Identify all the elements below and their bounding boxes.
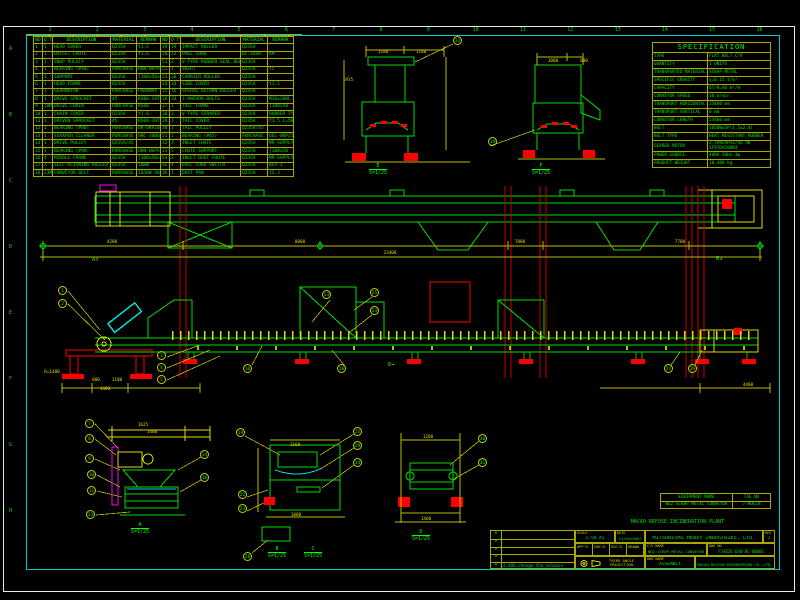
parts-cell: t1.5 (268, 81, 294, 88)
dim-text: 7700 (675, 240, 685, 245)
parts-cell: INLET CHUTE (181, 140, 241, 147)
spec-label: SPECIFIC GRAVITY (653, 77, 708, 85)
parts-cell: DRIVE PULLEY (53, 140, 111, 147)
parts-cell: 45 (111, 96, 137, 103)
parts-cell: t1.5 L=500 (268, 118, 294, 125)
spec-label: TYPE (653, 53, 708, 61)
parts-cell: 2 (43, 162, 53, 169)
parts-cell: Q235A (111, 44, 137, 51)
plant-title: MACAO REFUSE INCINERATION PLANT (595, 519, 760, 525)
parts-cell: UK-UKP208 (137, 125, 161, 132)
balloon-29: 29 (353, 441, 362, 450)
parts-row: 343INLET DUST CHUTEQ235AMR SUPPLY (161, 155, 294, 162)
parts-cell: 7 (34, 88, 43, 95)
item-label: DWG NAME (647, 557, 664, 561)
parts-cell: UEL-UKP213 (268, 133, 294, 140)
equipment-name-box: EQUIPMENT NAME TAG NO NO2 SCRAP METAL CO… (660, 493, 771, 509)
signoff-cell: APP'D (576, 544, 593, 555)
parts-cell: 30 (170, 73, 181, 80)
view-letter: C (304, 546, 322, 553)
dim-text: 1100 (416, 50, 426, 55)
parts-cell: 5 (34, 73, 43, 80)
parts-cell: Q235A (241, 96, 268, 103)
parts-cell: 27 (161, 103, 170, 110)
dim-text: 7800 (515, 240, 525, 245)
parts-header-cell: DESCRIPTION (181, 37, 241, 44)
parts-cell: PULL CORD (181, 51, 241, 58)
parts-cell: RUBBER TYPE (268, 110, 294, 117)
parts-cell: V-TYPE SCRAPER (181, 110, 241, 117)
balloon-7: 7 (85, 419, 94, 428)
drawing-title: NO2 SCRAP METAL CONVEYOR (646, 549, 706, 554)
rev-label: REV (765, 531, 771, 535)
parts-cell: PURCHASE (111, 88, 137, 95)
balloon-14: 14 (200, 450, 209, 459)
drawing-title-label: C/V NAME (647, 544, 664, 548)
parts-cell: 3 (170, 155, 181, 162)
parts-cell: 1 (43, 96, 53, 103)
parts-cell: PULL CORD SWITCH (181, 162, 241, 169)
scale-cell: SCALE 1:50 A1 (575, 530, 615, 543)
parts-cell: 1 (43, 110, 53, 117)
parts-row: 2022PULL CORDDC-18484M (161, 51, 294, 58)
view-letter: B (268, 546, 286, 553)
parts-cell: 1 (43, 125, 53, 132)
parts-cell: DRIVEN SPROCKET (53, 118, 111, 125)
revision-table: ⊗⊗⊗⊗Δ2.AUG change the colours (490, 530, 575, 569)
spec-label: BELT TYPE (653, 133, 708, 141)
spec-value: 1050Wx3P(1.5x2.4) (708, 125, 771, 133)
parts-cell: TAIL PULLEY (181, 125, 241, 132)
dim-text: 1400 (100, 387, 110, 392)
specification-table: SPECIFICATIONTYPEFLAT BELT C/VQUANTITY1 … (652, 42, 771, 168)
parts-cell: t2.3 (268, 170, 294, 177)
parts-cell: 14 (34, 140, 43, 147)
parts-list-header: NOQ'TYDESCRIPTIONMATERIALREMARK (34, 37, 161, 44)
dim-text: 800 (580, 59, 588, 64)
view-label-D: DS=1/25 (412, 529, 430, 542)
parts-cell: OUTLET CHUTE (53, 51, 111, 58)
parts-row: 1823MCONVEYOR BELTPURCHASE1050W 4800L (34, 170, 161, 177)
parts-header-cell: Q'TY (43, 37, 53, 44)
parts-header-cell: REMARK (268, 37, 294, 44)
parts-cell: 18 (34, 170, 43, 177)
parts-row: 101CHAIN COVERQ235At1.6 (34, 110, 161, 117)
parts-cell: SIDE COVER (181, 81, 241, 88)
view-label-A: AS=1/25 (131, 522, 149, 535)
parts-cell: 1 (170, 103, 181, 110)
parts-cell: Q235A (241, 88, 268, 95)
spec-value: γ=0.15 t/m³ (708, 77, 771, 85)
balloon-13: 13 (322, 290, 331, 299)
spec-value: 6T/H=40 m³/H (708, 85, 771, 93)
parts-list-right: NOQ'TYDESCRIPTIONMATERIALREMARK 1919IMPA… (160, 36, 294, 177)
parts-cell: Q235A/45 (111, 140, 137, 147)
parts-cell: DC-1848 (241, 51, 268, 58)
spec-label: QUANTITY (653, 61, 708, 69)
parts-cell: PARAMAX (137, 88, 161, 95)
balloon-23: 23 (370, 306, 379, 315)
tag-no-value: 7-HDE18 (733, 501, 771, 509)
parts-cell: IMPACT ROLLER (181, 44, 241, 51)
parts-cell: 1 (43, 73, 53, 80)
parts-header-cell: NO (161, 37, 170, 44)
parts-cell (268, 88, 294, 95)
parts-cell: Q235A (241, 170, 268, 177)
dim-text: 1160 (290, 443, 300, 448)
projection-cell: THIRD ANGLE PROJECTION (575, 556, 645, 569)
parts-row: 2330CARRIER ROLLERQ235A (161, 73, 294, 80)
parts-cell (268, 125, 294, 132)
parts-list-header: NOQ'TYDESCRIPTIONMATERIALREMARK (161, 37, 294, 44)
parts-cell: 1 (170, 170, 181, 177)
view-scale: S=1/25 (304, 553, 322, 559)
parts-cell: PURCHASE (111, 125, 137, 132)
dim-text: 1625 (138, 423, 148, 428)
parts-header-cell: NO (34, 37, 43, 44)
balloon-13: 13 (86, 510, 95, 519)
parts-cell: 29 (161, 118, 170, 125)
dim-text: 4200 (107, 240, 117, 245)
parts-cell: 100W (137, 162, 161, 169)
spec-row: CAPACITY6T/H=40 m³/H (653, 85, 771, 93)
parts-cell: [100x50 (268, 103, 294, 110)
parts-cell: 8 (34, 96, 43, 103)
view-label-F: FS=1/25 (532, 163, 550, 176)
parts-cell: [100x50 (268, 147, 294, 154)
parts-cell: 6 (34, 81, 43, 88)
parts-cell: SUPPORT (53, 73, 111, 80)
parts-header-cell: Q'TY (170, 37, 181, 44)
parts-row: 151BEARING (#90)PURCHASEUKN-UKP508 (34, 147, 161, 154)
balloon-4: 4 (157, 363, 166, 372)
parts-cell: 1 (43, 81, 53, 88)
spec-label: BELT (653, 125, 708, 133)
parts-row: 61HEAD FRAMEQ235A (34, 81, 161, 88)
revision-symbol: ⊗ (491, 539, 502, 547)
parts-cell: RS80 (137, 103, 161, 110)
section-arrow: ↑ (95, 257, 98, 263)
parts-cell: 1 (43, 51, 53, 58)
dim-text: 23400 (384, 251, 397, 256)
spec-row: BELT TYPEHEAT RESISTANT RUBBER (653, 133, 771, 141)
parts-cell: CHAIN COVER (53, 110, 111, 117)
balloon-32: 32 (453, 36, 462, 45)
drawing-no-cell: DWG NO FJ3626-D40-BC-00001 (707, 543, 775, 556)
parts-cell (268, 59, 294, 66)
spec-row: CONVEYOR SPEED10 m/min (653, 93, 771, 101)
spec-value: 23400 mm (708, 101, 771, 109)
balloon-19: 19 (236, 428, 245, 437)
view-label-C: CS=1/25 (304, 546, 322, 559)
parts-cell: 10M (43, 103, 53, 110)
dim-text: 1000 (548, 59, 558, 64)
spec-row: TRANSPORT VERTICAL0 mm (653, 109, 771, 117)
parts-cell: 1 (43, 133, 53, 140)
revision-symbol: ⊗ (491, 547, 502, 555)
parts-row: 172SELF-ALIGNING ROLLERQ235A100W (34, 162, 161, 169)
parts-cell: 9 (34, 103, 43, 110)
spec-value: FLAT BELT C/V (708, 53, 771, 61)
parts-row: 312BEARING (#65)PURCHASEUEL-UKP213 (161, 133, 294, 140)
parts-cell: PURCHASE (111, 170, 137, 177)
parts-row: 291TAIL COVERQ235At1.5 L=500 (161, 118, 294, 125)
parts-cell: Q235A (241, 44, 268, 51)
parts-cell: Q235A (241, 118, 268, 125)
revision-symbol: ⊗ (491, 531, 502, 539)
signoff-cell: DRAWN (627, 544, 644, 555)
spec-label: TRANSPORT VERTICAL (653, 109, 708, 117)
parts-header-cell: REMARK (137, 37, 161, 44)
parts-cell: Q235A (241, 103, 268, 110)
spec-row: TYPEFLAT BELT C/V (653, 53, 771, 61)
parts-cell: 1 (43, 147, 53, 154)
dim-text: 1100 (378, 50, 388, 55)
parts-cell: MR SUPPLY (268, 140, 294, 147)
parts-cell: 36 (161, 170, 170, 177)
view-letter: F (532, 163, 550, 170)
parts-cell: Q235A (111, 110, 137, 117)
balloon-10: 10 (87, 470, 96, 479)
parts-list-left: NOQ'TYDESCRIPTIONMATERIALREMARK 11HEAD C… (33, 36, 161, 177)
spec-row: QUANTITY1 UNITS (653, 61, 771, 69)
dim-text: 1200 (423, 435, 433, 440)
parts-row: 41BEARING (#40)PURCHASEUKN-UKP408 (34, 66, 161, 73)
parts-row: 354PULL CORD SWITCHQ235ABLP-3 (161, 162, 294, 169)
parts-header-row: NOQ'TYDESCRIPTIONMATERIALREMARK (34, 37, 161, 44)
company-cell: MITSUBISHI HEAVY INDUSTRIES, LTD. (645, 530, 763, 543)
view-scale: S=1/25 (532, 170, 550, 176)
parts-cell: SNAP PULLEY (53, 59, 111, 66)
drawing-title-cell: C/V NAME NO2 SCRAP METAL CONVEYOR (645, 543, 707, 556)
parts-cell: 2 (170, 59, 181, 66)
parts-cell: INLET DUST CHUTE (181, 155, 241, 162)
rev-cell: REV 1 (763, 530, 775, 543)
parts-cell (137, 59, 161, 66)
parts-cell: 24 (161, 81, 170, 88)
parts-cell: UKN-UKP408 (137, 66, 161, 73)
spec-value: SCRAP METAL (708, 69, 771, 77)
spec-row: TRANSPORT HORIZONTAL23400 mm (653, 101, 771, 109)
parts-cell: 1 (170, 66, 181, 73)
parts-row: 2516SPIRAL RETURN ROLLERQ235A (161, 88, 294, 95)
parts-cell (268, 73, 294, 80)
parts-row: 121BEARING (#80)PURCHASEUK-UKP208 (34, 125, 161, 132)
spec-row: SPECIFIC GRAVITYγ=0.15 t/m³ (653, 77, 771, 85)
parts-cell: BEARING (#90) (53, 147, 111, 154)
revision-note-text: 2.AUG change the colours (503, 562, 574, 570)
parts-row: 1919IMPACT ROLLERQ235A (161, 44, 294, 51)
balloon-5: 5 (157, 375, 166, 384)
parts-cell: 10 (34, 110, 43, 117)
parts-cell: RS80-19T (137, 96, 161, 103)
parts-row: 221SKIRTQ235At5 (161, 66, 294, 73)
parts-cell: DRIVE SPROCKET (53, 96, 111, 103)
parts-cell: 1 (170, 110, 181, 117)
balloon-1: 1 (58, 286, 67, 295)
parts-cell: Q235A (111, 51, 137, 58)
parts-cell: 22 (161, 66, 170, 73)
equipment-name-label: EQUIPMENT NAME (661, 494, 733, 502)
date-cell: DATE 11/04/2007 (615, 530, 645, 543)
parts-cell: 23 (161, 73, 170, 80)
parts-cell: HNC-1000S (137, 133, 161, 140)
parts-cell: 2 (170, 133, 181, 140)
parts-cell: HEAD COVER (53, 44, 111, 51)
parts-row: 111DRIVEN SPROCKET45RS80-30T (34, 118, 161, 125)
parts-cell: Q235A (111, 162, 137, 169)
parts-cell: BEARING (#65) (181, 133, 241, 140)
spec-label: CAPACITY (653, 85, 708, 93)
balloon-3: 3 (157, 351, 166, 360)
parts-cell: 1 (170, 125, 181, 132)
dim-text: 1000 (291, 513, 301, 518)
spec-value: 10,400 kg (708, 160, 771, 168)
parts-cell: 26 (161, 96, 170, 103)
signoff-cell: CHK'D (593, 544, 610, 555)
parts-cell: t1.6 (137, 51, 161, 58)
parts-row: 323INLET CHUTEQ235AMR SUPPLY (161, 140, 294, 147)
parts-cell (137, 140, 161, 147)
parts-row: 212V-TYPE RUBBER SEAL BELTQ235A (161, 59, 294, 66)
spec-row: BELT1050Wx3P(1.5x2.4) (653, 125, 771, 133)
parts-cell: 19 (161, 44, 170, 51)
parts-cell: UKN-UKP508 (137, 147, 161, 154)
dim-text: 1100 (112, 378, 122, 383)
balloon-16: 16 (200, 473, 209, 482)
parts-cell: RS80-30T (137, 118, 161, 125)
parts-cell: t1.5 (137, 44, 161, 51)
balloon-27: 27 (664, 364, 673, 373)
view-letter: D (412, 529, 430, 536)
parts-cell: Q235A (241, 73, 268, 80)
parts-cell: 35 (161, 162, 170, 169)
dim-text: 1400 (421, 517, 431, 522)
parts-cell: BEARING (#80) (53, 125, 111, 132)
parts-cell: BEARING (#40) (53, 66, 111, 73)
parts-cell: TAIL FRAME (181, 103, 241, 110)
parts-cell: CONVEYOR BELT (53, 170, 111, 177)
signoff-cell: DSG'D (610, 544, 627, 555)
parts-cell: BLP-3 (268, 162, 294, 169)
balloon-28: 28 (243, 552, 252, 561)
return-roller-ticks (160, 346, 756, 350)
parts-cell: Q235A (241, 59, 268, 66)
spec-value: 1 UNITS (708, 61, 771, 69)
parts-cell: DRIVE CHAIN (53, 103, 111, 110)
parts-cell (268, 44, 294, 51)
dim-text: 1935 (343, 78, 353, 83)
section-arrow: → (391, 362, 394, 368)
parts-row: 164MIDDLE FRAMEQ235A[100x50x5 (34, 155, 161, 162)
parts-cell: 34 (170, 96, 181, 103)
parts-cell: 1 (170, 118, 181, 125)
parts-cell: J-ANCHOR BOLTS (181, 96, 241, 103)
parts-row: 2434SIDE COVERQ235At1.5 (161, 81, 294, 88)
design-stamp: MACAU DESIGN ENGINEERING CO.,LTD. (696, 562, 774, 567)
parts-cell: Q235A (111, 81, 137, 88)
parts-cell: Q235A (241, 110, 268, 117)
spec-row: TRANSPORTED MATERIALSCRAP METAL (653, 69, 771, 77)
balloon-16: 16 (337, 364, 346, 373)
parts-row: 51SUPPORTQ235A[100x50x5 (34, 73, 161, 80)
parts-row: 281V-TYPE SCRAPERQ235ARUBBER TYPE (161, 110, 294, 117)
parts-cell: HEAD FRAME (53, 81, 111, 88)
equipment-name-value: NO2 SCRAP METAL CONVEYOR (661, 501, 733, 509)
parts-cell: SCRAPER CLEANER (53, 133, 111, 140)
parts-cell: MR SUPPLY (268, 155, 294, 162)
parts-cell: [100x50x5 (137, 155, 161, 162)
parts-row: 2634J-ANCHOR BOLTSQ235AM16x200L (161, 96, 294, 103)
balloon-29: 29 (688, 364, 697, 373)
balloon-10: 10 (243, 364, 252, 373)
parts-cell: Q235A (111, 59, 137, 66)
parts-cell: 34 (170, 81, 181, 88)
balloon-34: 34 (353, 458, 362, 467)
dim-text: 1400 (147, 430, 157, 435)
spec-value: 23400 mm (708, 117, 771, 125)
parts-cell: 11 (34, 118, 43, 125)
parts-row: 910MDRIVE CHAINPURCHASERS80 (34, 103, 161, 110)
balloon-23: 23 (238, 504, 247, 513)
parts-cell: V-TYPE RUBBER SEAL BELT (181, 59, 241, 66)
balloon-11: 11 (87, 486, 96, 495)
carrier-roller-ticks (172, 331, 756, 340)
parts-row: 11HEAD COVERQ235At1.5 (34, 44, 161, 51)
third-angle-symbol (579, 559, 601, 568)
spec-row: PRODUCT WEIGHT10,400 kg (653, 160, 771, 168)
parts-cell: Q235A (241, 140, 268, 147)
parts-cell: 32 (161, 140, 170, 147)
parts-cell: 4 (170, 162, 181, 169)
parts-cell: 15 (34, 147, 43, 154)
dim-text: 4400 (743, 383, 753, 388)
parts-cell: 3 (34, 59, 43, 66)
dim-text: 800 (92, 378, 100, 383)
parts-cell: SELF-ALIGNING ROLLER (53, 162, 111, 169)
parts-row: 21OUTLET CHUTEQ235At1.6 (34, 51, 161, 58)
parts-cell: 16 (34, 155, 43, 162)
parts-cell: Q235A (111, 73, 137, 80)
dim-text: R=1400 (44, 370, 60, 375)
parts-cell: 22 (170, 51, 181, 58)
balloon-2: 2 (58, 299, 67, 308)
parts-cell: 12 (34, 125, 43, 132)
spec-value: 10 m/min (708, 93, 771, 101)
spec-value: 0 mm (708, 109, 771, 117)
date-label: DATE (617, 531, 625, 535)
spec-row: POWER SOURCE400V 50Hz 3φ (653, 152, 771, 160)
parts-cell: t5 (268, 66, 294, 73)
projection-label: THIRD ANGLE PROJECTION (600, 559, 643, 567)
company-name: MITSUBISHI HEAVY INDUSTRIES, LTD. (646, 536, 762, 541)
view-scale: S=1/25 (412, 536, 430, 542)
parts-cell: SKIRT (181, 66, 241, 73)
parts-row: 31SNAP PULLEYQ235A (34, 59, 161, 66)
parts-cell: 19 (170, 44, 181, 51)
parts-cell: 4 (43, 155, 53, 162)
spec-label: CONVEYOR LENGTH (653, 117, 708, 125)
parts-cell: Q235A (241, 155, 268, 162)
parts-cell: PURCHASE (111, 133, 137, 140)
parts-cell: 3 (170, 140, 181, 147)
section-marker-E: E→ (388, 362, 395, 368)
parts-cell: 20 (161, 51, 170, 58)
spec-label: GEARED MOTOR (653, 141, 708, 152)
spec-label: POWER SOURCE (653, 152, 708, 160)
parts-cell: 31 (161, 133, 170, 140)
view-scale: S=1/25 (369, 170, 387, 176)
